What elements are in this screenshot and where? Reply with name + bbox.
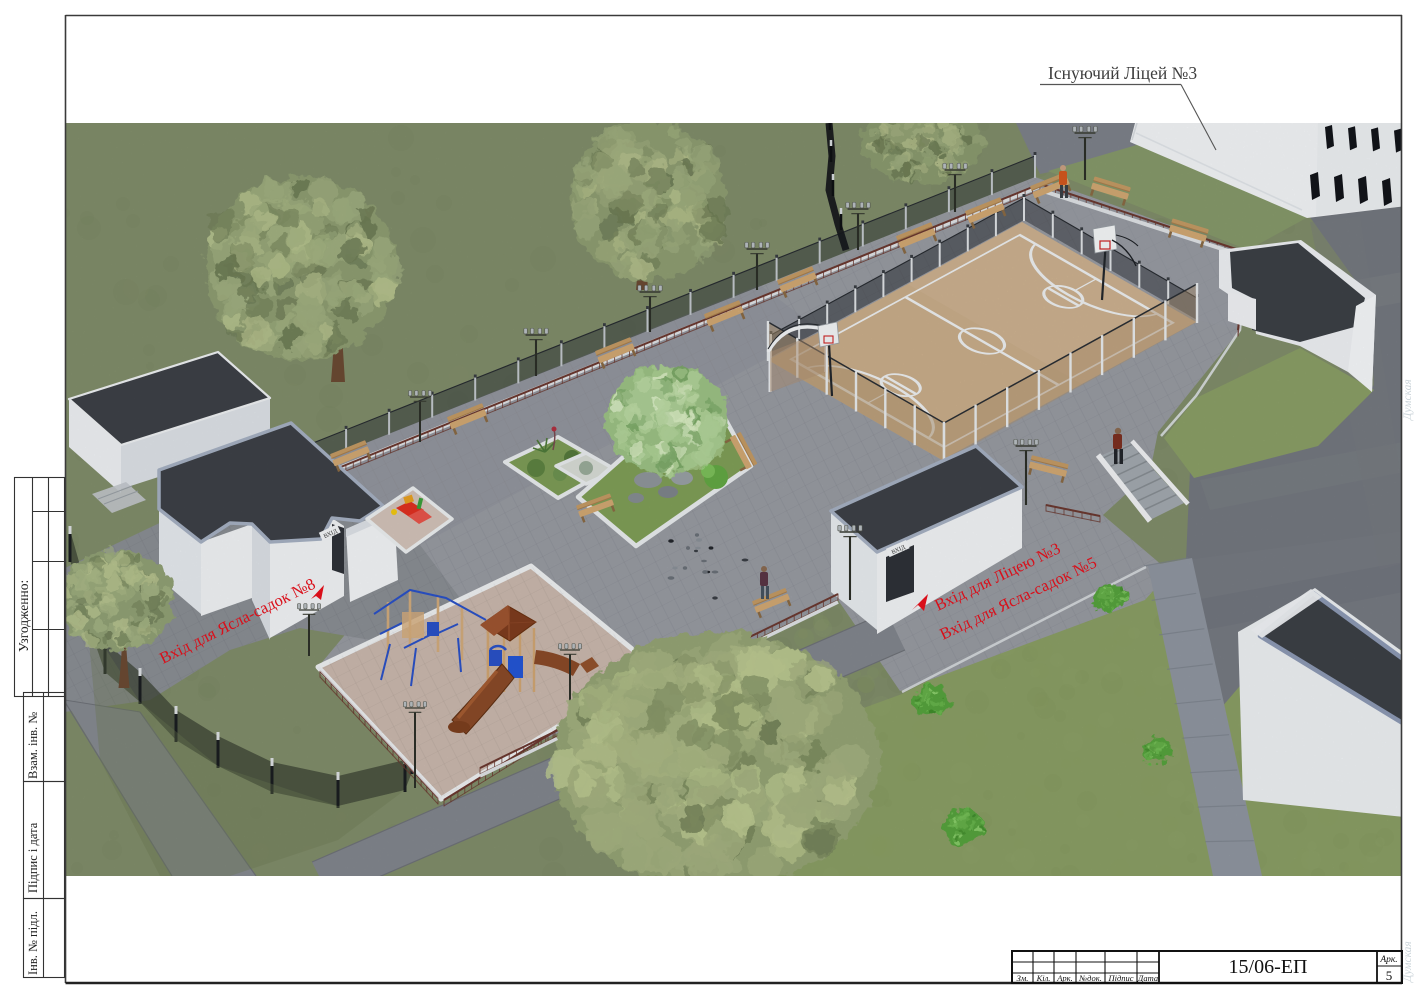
svg-text:5: 5 xyxy=(1386,968,1393,983)
svg-text:Кіл.: Кіл. xyxy=(1036,973,1051,983)
svg-text:Узгодженно:: Узгодженно: xyxy=(16,580,31,652)
svg-text:№док.: №док. xyxy=(1078,973,1102,983)
svg-text:Думская: Думская xyxy=(1402,941,1414,983)
svg-text:Існуючий Ліцей №3: Існуючий Ліцей №3 xyxy=(1048,63,1197,83)
svg-text:Арк.: Арк. xyxy=(1379,955,1397,965)
svg-text:Підпис і дата: Підпис і дата xyxy=(26,822,40,893)
svg-text:Зм.: Зм. xyxy=(1017,973,1029,983)
svg-text:Думская: Думская xyxy=(1402,379,1414,421)
svg-text:Дата: Дата xyxy=(1137,973,1158,983)
svg-text:Взам. інв. №: Взам. інв. № xyxy=(26,712,40,779)
svg-text:Інв. № підл.: Інв. № підл. xyxy=(26,911,40,975)
svg-text:Підпис: Підпис xyxy=(1107,973,1133,983)
svg-text:Арк.: Арк. xyxy=(1056,973,1073,983)
svg-text:15/06-ЕП: 15/06-ЕП xyxy=(1229,956,1308,978)
